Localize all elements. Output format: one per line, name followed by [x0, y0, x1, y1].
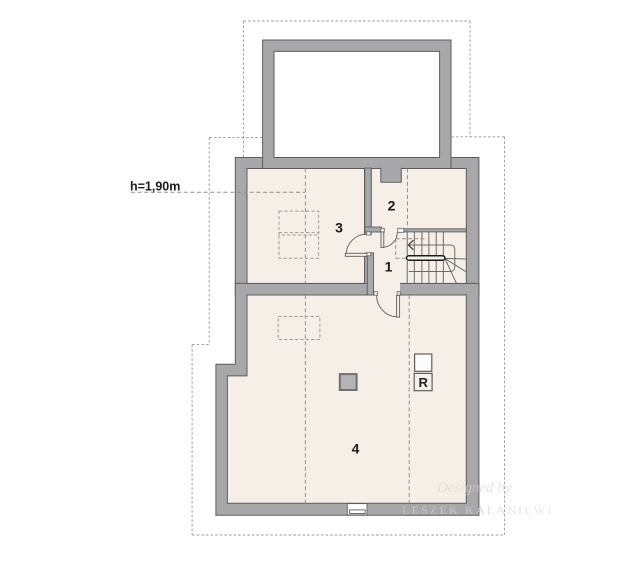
- svg-text:1: 1: [385, 259, 393, 275]
- svg-text:h=1,90m: h=1,90m: [130, 180, 180, 194]
- svg-text:R: R: [419, 375, 429, 390]
- svg-text:3: 3: [335, 220, 343, 236]
- svg-text:2: 2: [388, 198, 396, 214]
- svg-text:LESZEK KALANIEWI: LESZEK KALANIEWI: [402, 503, 554, 517]
- svg-text:4: 4: [352, 441, 360, 457]
- svg-text:Designed by: Designed by: [436, 480, 512, 496]
